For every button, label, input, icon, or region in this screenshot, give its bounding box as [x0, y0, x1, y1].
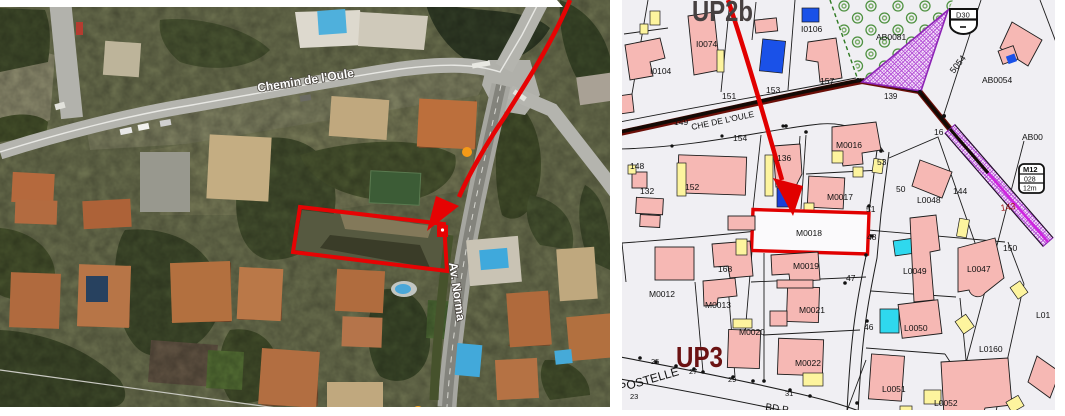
svg-text:153: 153: [766, 85, 780, 95]
svg-text:AB00: AB00: [1022, 132, 1043, 142]
svg-text:139: 139: [884, 92, 898, 101]
svg-text:48: 48: [867, 232, 877, 242]
svg-text:M0018: M0018: [796, 228, 822, 238]
svg-text:143: 143: [1000, 201, 1016, 213]
svg-text:144: 144: [953, 186, 967, 196]
svg-text:168: 168: [718, 264, 732, 274]
svg-text:028: 028: [1024, 177, 1036, 184]
svg-text:154: 154: [733, 133, 747, 143]
svg-text:I0104: I0104: [650, 66, 672, 76]
svg-text:151: 151: [722, 91, 736, 101]
svg-text:46: 46: [864, 322, 874, 332]
svg-text:149: 149: [674, 117, 688, 127]
svg-text:27: 27: [689, 367, 697, 376]
svg-text:31: 31: [785, 389, 793, 398]
svg-text:AB0081: AB0081: [876, 32, 907, 42]
svg-text:150: 150: [1003, 243, 1017, 253]
svg-text:148: 148: [630, 161, 644, 171]
svg-text:BD P: BD P: [765, 402, 790, 416]
svg-text:152: 152: [685, 182, 699, 192]
svg-text:M0012: M0012: [649, 289, 675, 299]
svg-text:M12: M12: [1023, 165, 1038, 174]
svg-text:L0052: L0052: [934, 398, 958, 408]
svg-text:132: 132: [640, 186, 654, 196]
svg-text:M0017: M0017: [827, 192, 853, 202]
svg-text:L0051: L0051: [882, 384, 906, 394]
svg-text:M0013: M0013: [705, 300, 731, 310]
svg-text:50: 50: [896, 184, 906, 194]
svg-text:M0020: M0020: [739, 327, 765, 337]
svg-text:UP3: UP3: [676, 342, 723, 374]
svg-text:M0016: M0016: [836, 140, 862, 150]
svg-text:12m: 12m: [1023, 186, 1037, 193]
svg-text:AB0054: AB0054: [982, 75, 1013, 85]
svg-text:M0019: M0019: [793, 261, 819, 271]
svg-text:L01: L01: [1036, 310, 1050, 320]
svg-text:136: 136: [777, 153, 791, 163]
svg-text:16: 16: [934, 127, 944, 137]
svg-text:L0049: L0049: [903, 266, 927, 276]
svg-text:M0021: M0021: [799, 305, 825, 315]
svg-text:L0047: L0047: [967, 264, 991, 274]
svg-text:157: 157: [820, 76, 834, 86]
svg-text:L0048: L0048: [917, 195, 941, 205]
svg-text:L0160: L0160: [979, 344, 1003, 354]
svg-text:53: 53: [877, 157, 887, 167]
svg-text:47: 47: [846, 273, 856, 283]
svg-text:D30: D30: [956, 11, 970, 20]
svg-text:51: 51: [866, 204, 876, 214]
svg-text:I0106: I0106: [801, 24, 823, 34]
svg-text:I0074: I0074: [696, 39, 718, 49]
svg-text:M0022: M0022: [795, 358, 821, 368]
svg-text:23: 23: [630, 392, 638, 401]
svg-text:29: 29: [728, 375, 736, 384]
svg-text:25: 25: [651, 357, 659, 366]
svg-text:UP2b: UP2b: [692, 0, 753, 28]
svg-text:L0050: L0050: [904, 323, 928, 333]
